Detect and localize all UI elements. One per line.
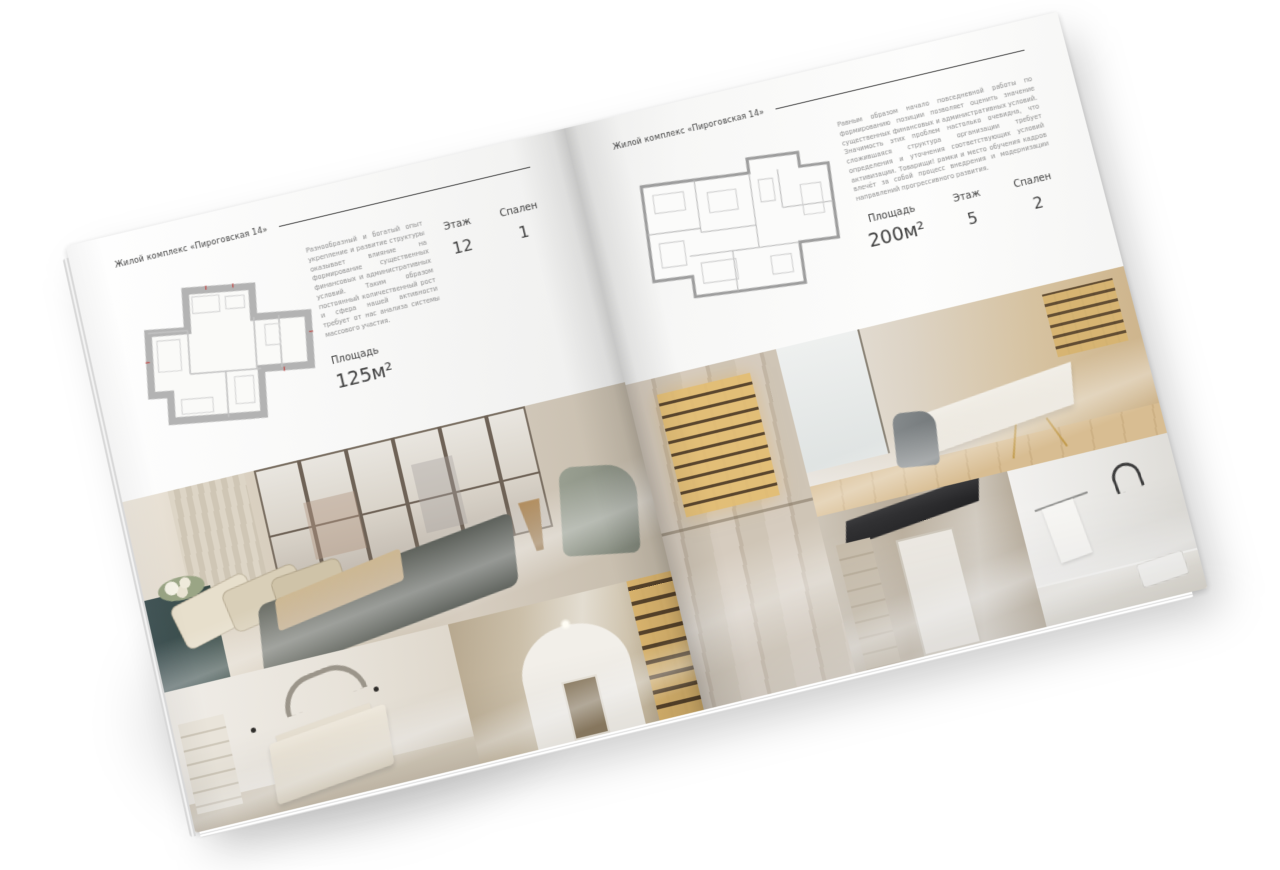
bedrooms-value: 2 [1017,189,1059,216]
wall-sconce [250,727,256,733]
left-page-stats: Этаж 12 Спален 1 [443,200,574,371]
left-page-info-column: Разнообразный и богатый опыт укрепление … [305,220,458,404]
left-page-paragraph: Разнообразный и богатый опыт укрепление … [305,220,443,341]
bedrooms-stat-left: Спален 1 [499,200,572,358]
wall-sconce [373,686,379,692]
right-page-info-column: Равным образом начало повседневной работ… [837,75,1070,271]
floor-label: Этаж [952,188,982,205]
bedrooms-label: Спален [1013,171,1053,190]
floor-stat-left: Этаж 12 [443,216,505,371]
bedrooms-stat-right: Спален 2 [1013,171,1060,216]
right-page-photo-collage [626,266,1208,710]
bedrooms-label: Спален [499,200,539,219]
floor-plan-right [626,135,855,313]
bedrooms-value: 1 [503,218,545,245]
floor-value: 12 [447,234,478,259]
brochure-mockup-scene: Жилой комплекс «Пироговская 14» [66,12,1208,833]
floor-stat-right: Этаж 5 [952,188,988,231]
left-page-photo-collage [122,382,703,833]
faucet [1107,458,1144,495]
area-stat-right: Площадь 200м² [862,202,927,252]
floor-label: Этаж [443,216,473,233]
desk-chair [892,410,941,469]
right-page-content: Равным образом начало повседневной работ… [619,75,1069,323]
floor-plan-2-bedroom-drawing [626,135,855,313]
floor-value: 5 [957,206,989,231]
lit-display-shelves [656,372,779,517]
floor-plan-left [132,267,319,436]
white-doorway [895,527,981,657]
lounge-chair [559,463,642,557]
shelving-unit [178,714,244,815]
floor-plan-1-bedroom-drawing [132,267,319,436]
lit-bookcase [1042,278,1128,358]
towel [1041,498,1092,563]
open-brochure-spread: Жилой комплекс «Пироговская 14» [66,12,1208,833]
area-stat-left: Площадь 125м² [330,328,455,392]
